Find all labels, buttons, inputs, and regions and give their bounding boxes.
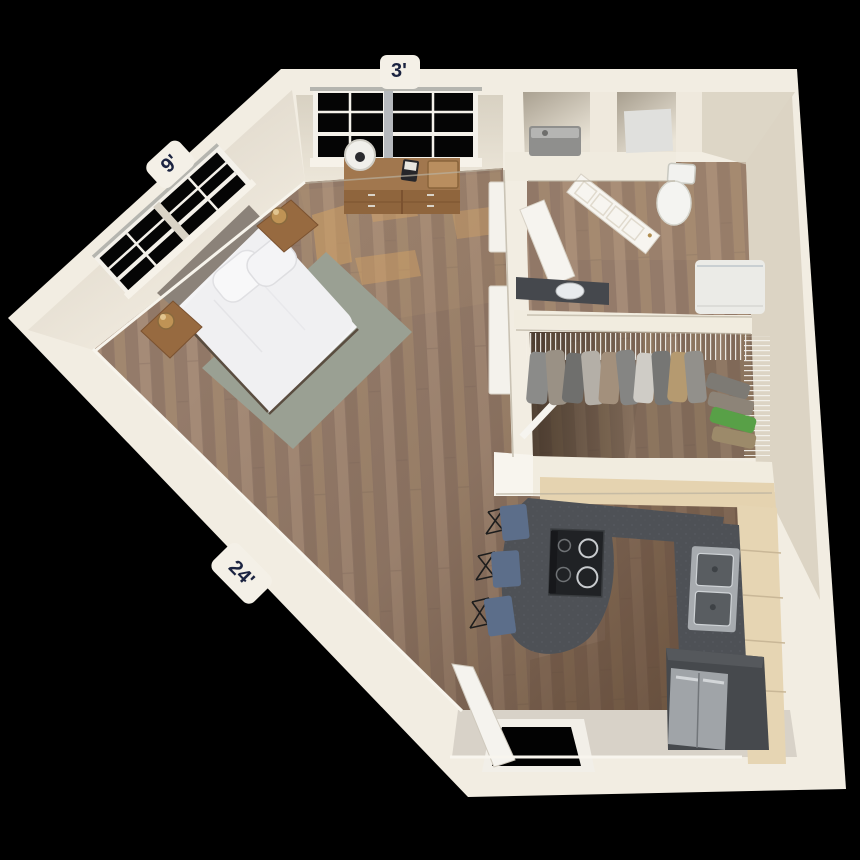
svg-text:3': 3' xyxy=(391,60,407,82)
